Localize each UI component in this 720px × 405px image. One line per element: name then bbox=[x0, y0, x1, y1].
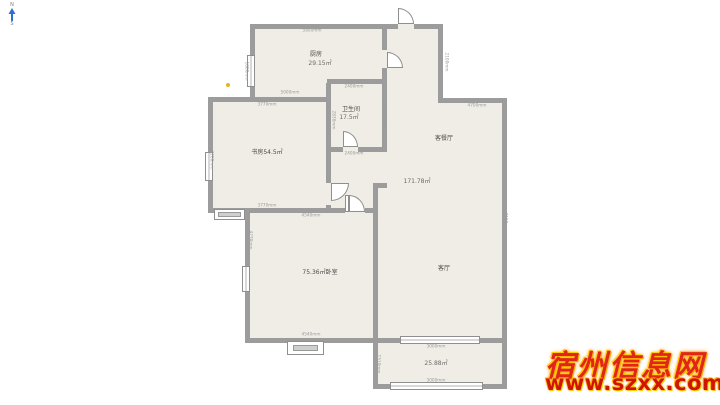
room-area-kitchen: 29.15㎡ bbox=[298, 60, 342, 67]
door-swing-icon bbox=[398, 8, 414, 24]
dimension-label: 5800mm bbox=[298, 29, 326, 33]
bay-window-sill bbox=[293, 345, 318, 351]
marker-dot bbox=[226, 83, 230, 87]
dimension-label: 4230mm bbox=[248, 226, 252, 254]
dimension-label: 4700mm bbox=[463, 104, 491, 108]
wall bbox=[373, 384, 390, 389]
wall bbox=[245, 292, 250, 343]
dimension-label: 2830mm bbox=[382, 106, 386, 134]
dimension-label: 3770mm bbox=[253, 204, 281, 208]
dimension-label: 2100mm bbox=[444, 48, 448, 76]
room-label-study: 书房54.5㎡ bbox=[237, 149, 297, 156]
dimension-label: 2400mm bbox=[340, 152, 368, 156]
wall bbox=[373, 183, 387, 188]
room-label-kitchen: 厨房 bbox=[296, 51, 336, 58]
dimension-label: 3770mm bbox=[253, 103, 281, 107]
room-label-bedroom: 75.36㎡卧室 bbox=[278, 269, 362, 276]
dimension-label: 3000mm bbox=[422, 345, 450, 349]
wall bbox=[438, 29, 443, 99]
room-area-balcony: 25.88㎡ bbox=[406, 360, 466, 367]
dimension-label: 2400mm bbox=[340, 85, 368, 89]
door-leaf bbox=[345, 195, 349, 212]
dimension-label: 3200mm bbox=[209, 146, 213, 174]
wall bbox=[483, 384, 507, 389]
room-label-dining: 客餐厅 bbox=[414, 135, 474, 142]
bay-window-sill bbox=[218, 212, 241, 217]
dimension-label: 5000mm bbox=[276, 91, 304, 95]
window bbox=[390, 382, 483, 390]
dimension-label: 3000mm bbox=[422, 379, 450, 383]
room-area-living: 171.78㎡ bbox=[387, 178, 447, 185]
watermark-site-url: www.szxx.com.cn bbox=[545, 371, 720, 395]
dimension-label: 1510mm bbox=[501, 350, 505, 378]
dimension-label: 4540mm bbox=[297, 333, 325, 337]
dimension-label: 2830mm bbox=[331, 106, 335, 134]
dimension-label: 7150mm bbox=[503, 208, 507, 236]
room-label-living: 客厅 bbox=[414, 265, 474, 272]
room-label-bathroom: 卫生间 bbox=[331, 106, 371, 113]
window bbox=[242, 266, 250, 292]
dimension-label: 1800mm bbox=[244, 57, 248, 85]
floorplan-page: N S 厨房 29.15㎡ 书房54.5㎡ 卫生间 17.5㎡ 客餐厅 171.… bbox=[0, 0, 720, 405]
dimension-label: 4540mm bbox=[297, 214, 325, 218]
window bbox=[400, 336, 480, 344]
wall bbox=[382, 29, 387, 50]
dimension-label: 1510mm bbox=[376, 350, 380, 378]
wall bbox=[373, 183, 378, 343]
